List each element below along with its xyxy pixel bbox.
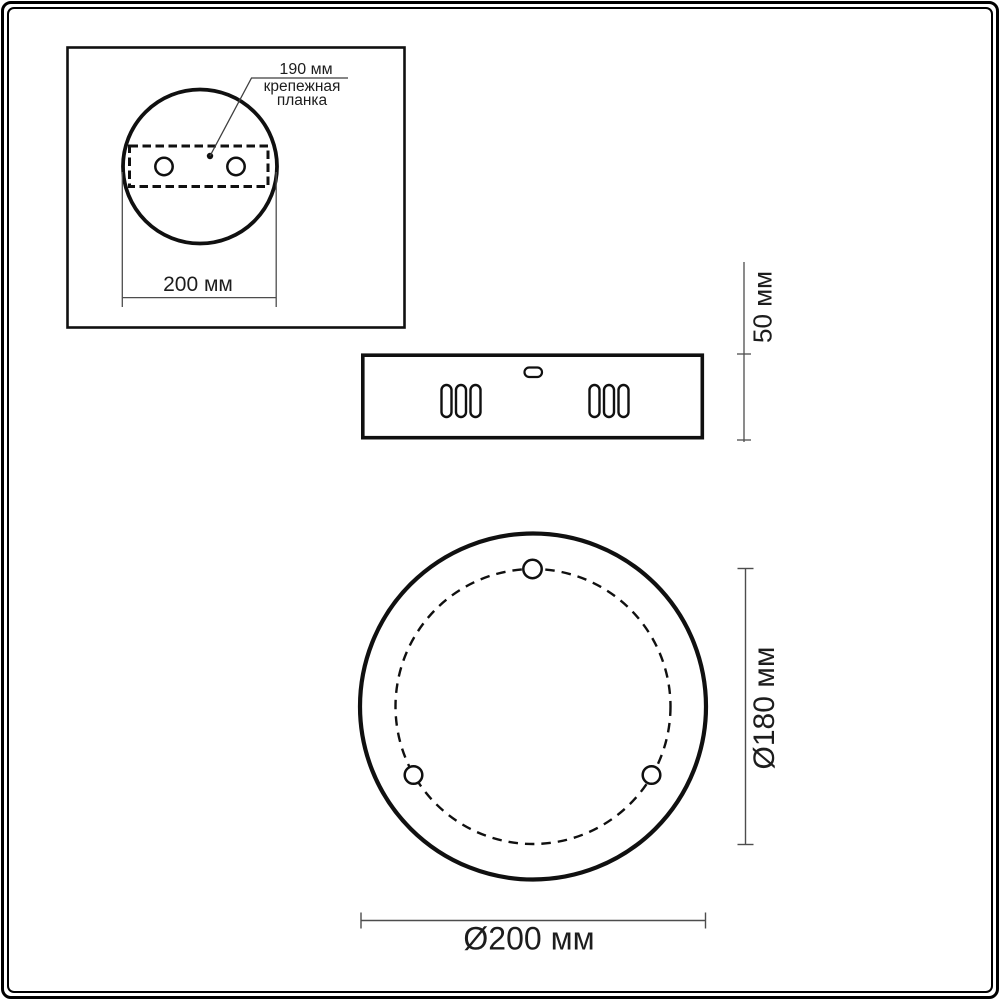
- vent-slot: [456, 385, 466, 417]
- dimension-drawing: [0, 0, 1000, 1000]
- bolt-circle-dimension-label: Ø180 мм: [748, 647, 782, 770]
- vent-slot: [471, 385, 481, 417]
- inset-width-dimension-label: 200 мм: [163, 273, 233, 297]
- vent-slot: [604, 385, 614, 417]
- mounting-bracket-caption: крепежная планка: [264, 80, 341, 108]
- canopy-front-view-circle: [360, 534, 706, 880]
- technical-drawing-page: { "inset": { "leader_dim": "190 мм", "le…: [0, 0, 1000, 1000]
- side-height-dimension-label: 50 мм: [748, 271, 779, 343]
- cable-slot-oval: [525, 368, 543, 378]
- bracket-hole-spacing-label: 190 мм: [279, 61, 332, 79]
- bracket-screw-hole-left: [155, 158, 172, 175]
- suspension-hole-right: [643, 766, 661, 784]
- vent-slot: [619, 385, 629, 417]
- canopy-top-view-circle: [123, 90, 277, 244]
- suspension-hole-top: [523, 560, 541, 578]
- bolt-circle-dashed: [396, 569, 671, 844]
- vent-slot: [442, 385, 452, 417]
- mounting-bracket-caption-line2: планка: [264, 94, 341, 108]
- vent-slot: [590, 385, 600, 417]
- outer-diameter-dimension-label: Ø200 мм: [463, 921, 594, 958]
- bracket-screw-hole-right: [227, 158, 244, 175]
- mounting-bracket-dashed-outline: [130, 146, 269, 187]
- suspension-hole-left: [405, 766, 423, 784]
